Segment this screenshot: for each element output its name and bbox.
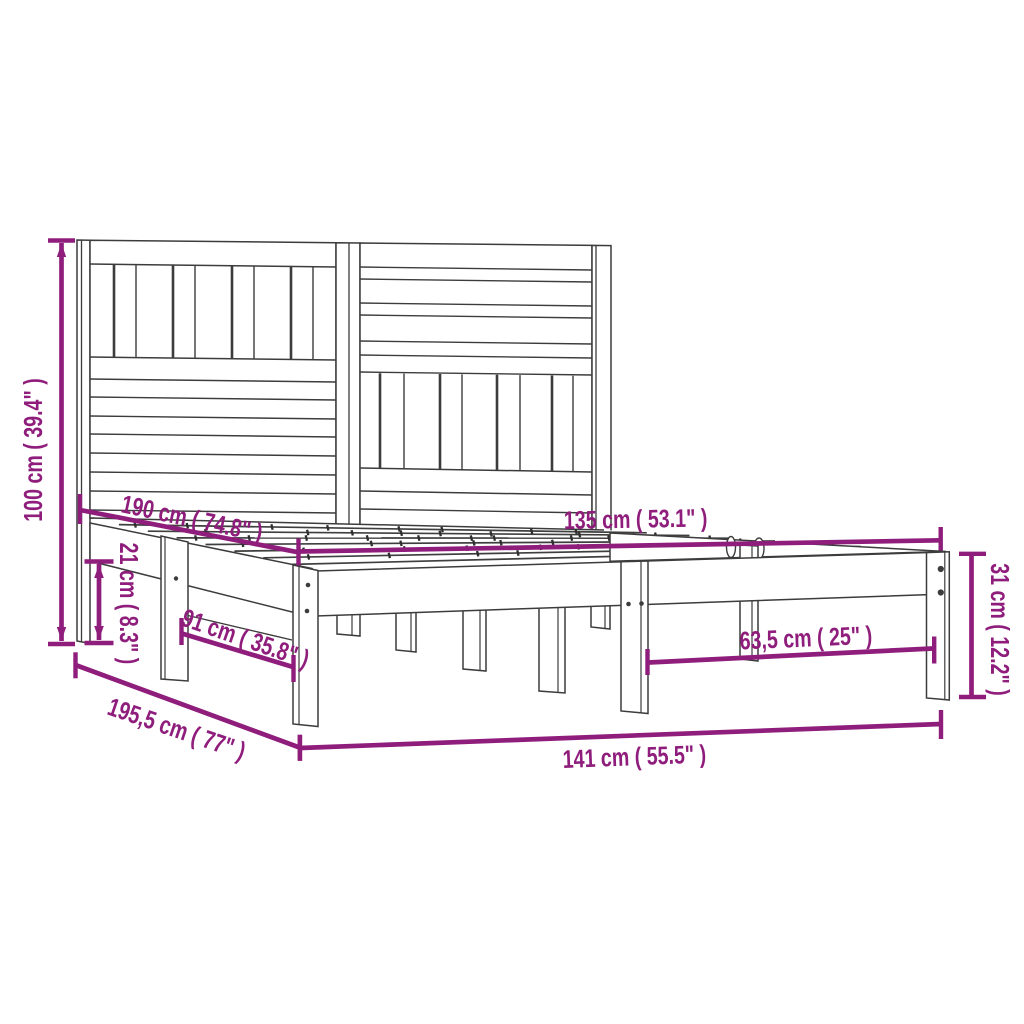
svg-text:63,5 cm ( 25" ): 63,5 cm ( 25" ) <box>739 620 873 655</box>
svg-text:100 cm ( 39.4" ): 100 cm ( 39.4" ) <box>18 378 47 522</box>
svg-text:31 cm ( 12.2" ): 31 cm ( 12.2" ) <box>985 563 1014 696</box>
svg-text:135 cm ( 53.1" ): 135 cm ( 53.1" ) <box>564 503 708 535</box>
svg-text:21 cm ( 8.3" ): 21 cm ( 8.3" ) <box>114 543 143 665</box>
svg-text:141 cm ( 55.5" ): 141 cm ( 55.5" ) <box>562 739 707 774</box>
